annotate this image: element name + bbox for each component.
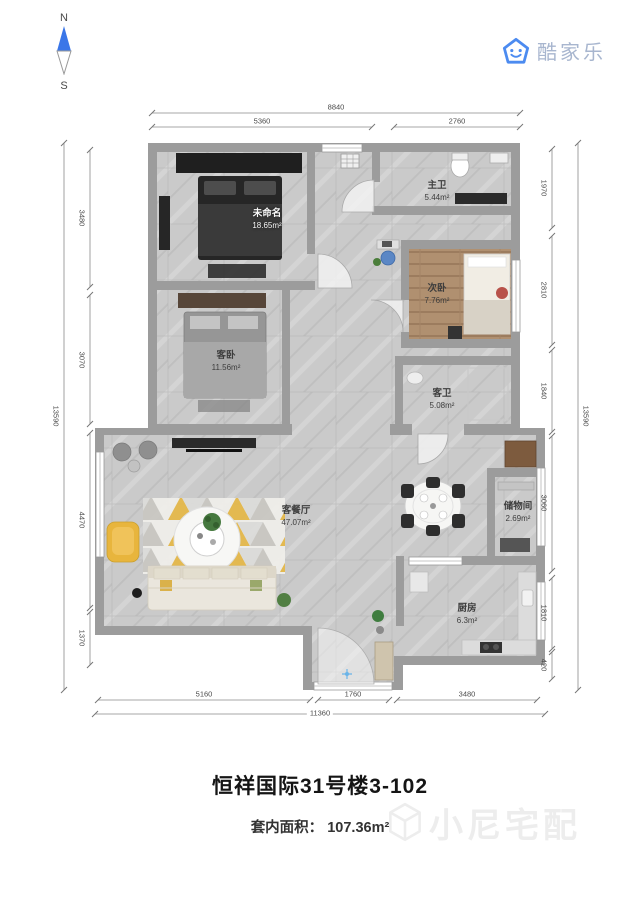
- compass: N S: [50, 12, 78, 93]
- room-label-storage: 储物间 2.69m²: [504, 501, 533, 525]
- dim-top-outer: 8840: [328, 103, 345, 112]
- room-label-guest-bedroom: 客卧 11.56m²: [212, 350, 241, 374]
- area-line: 套内面积： 107.36m²: [0, 816, 640, 837]
- room-label-guest-bath: 客卫 5.08m²: [430, 388, 455, 412]
- room-label-kitchen: 厨房 6.3m²: [457, 603, 477, 627]
- room-name: 厨房: [457, 603, 477, 615]
- room-area: 5.08m²: [430, 401, 455, 410]
- dim-right-inner-5: 420: [540, 659, 549, 672]
- kujiale-logo: 酷家乐: [502, 36, 606, 65]
- dim-left-inner-3: 1370: [78, 630, 87, 647]
- floorplan-page: N S 酷家乐 8840 5360 2760 5160 1760 3480 11…: [0, 0, 640, 905]
- dim-right-inner-3: 3060: [540, 495, 549, 512]
- room-name: 主卫: [425, 180, 450, 192]
- dim-left-outer: 13590: [52, 406, 61, 427]
- compass-south-label: S: [50, 80, 78, 93]
- dim-right-outer: 13590: [582, 406, 591, 427]
- room-label-master: 未命名 18.65m²: [252, 208, 281, 232]
- dim-left-inner-2: 4470: [78, 512, 87, 529]
- page-title: 恒祥国际31号楼3-102: [0, 770, 640, 800]
- dim-bottom-inner-2: 3480: [459, 690, 476, 699]
- dim-right-inner-4: 1810: [540, 605, 549, 622]
- room-area: 7.76m²: [425, 296, 450, 305]
- room-area: 6.3m²: [457, 616, 477, 625]
- dim-bottom-inner-1: 1760: [345, 690, 362, 699]
- room-area: 47.07m²: [281, 518, 310, 527]
- room-name: 客餐厅: [281, 505, 310, 517]
- room-name: 客卧: [212, 350, 241, 362]
- dim-right-inner-1: 2810: [540, 282, 549, 299]
- room-label-master-bath: 主卫 5.44m²: [425, 180, 450, 204]
- area-label: 套内面积：: [251, 820, 324, 836]
- room-name: 次卧: [425, 283, 450, 295]
- room-label-living-dining: 客餐厅 47.07m²: [281, 505, 310, 529]
- dim-top-inner-0: 5360: [254, 117, 271, 126]
- dim-left-inner-1: 3070: [78, 352, 87, 369]
- room-area: 18.65m²: [252, 221, 281, 230]
- room-name: 客卫: [430, 388, 455, 400]
- dim-top-inner-1: 2760: [449, 117, 466, 126]
- room-name: 储物间: [504, 501, 533, 513]
- compass-north-label: N: [50, 12, 78, 25]
- area-value: 107.36m²: [327, 820, 389, 836]
- room-name: 未命名: [252, 208, 281, 220]
- dim-bottom-inner-0: 5160: [196, 690, 213, 699]
- dim-right-inner-0: 1970: [540, 180, 549, 197]
- kujiale-logo-icon: [502, 37, 530, 65]
- dim-left-inner-0: 3480: [78, 210, 87, 227]
- compass-needle-icon: [51, 25, 77, 75]
- room-area: 2.69m²: [506, 514, 531, 523]
- dim-right-inner-2: 1840: [540, 383, 549, 400]
- kujiale-logo-text: 酷家乐: [537, 36, 606, 65]
- room-area: 11.56m²: [212, 363, 241, 372]
- dim-bottom-outer: 11360: [307, 709, 333, 718]
- room-area: 5.44m²: [425, 193, 450, 202]
- room-label-second-bedroom: 次卧 7.76m²: [425, 283, 450, 307]
